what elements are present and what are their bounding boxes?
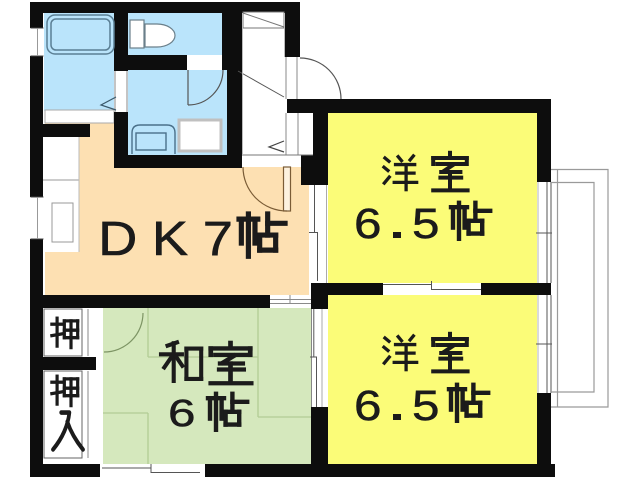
svg-text:6: 6 — [354, 381, 381, 429]
svg-text:5: 5 — [412, 381, 439, 429]
svg-text:6: 6 — [168, 392, 195, 434]
svg-text:DK7: DK7 — [98, 212, 248, 265]
svg-text:5: 5 — [412, 199, 439, 247]
svg-text:6: 6 — [354, 199, 381, 247]
